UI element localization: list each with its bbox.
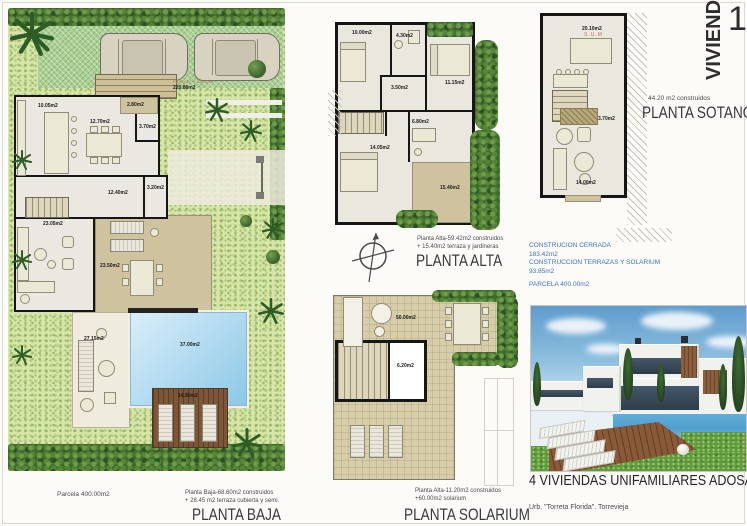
washbasin xyxy=(414,148,422,156)
sofa xyxy=(553,148,567,190)
sphere-lamp xyxy=(677,444,689,455)
solarium-caption-1: Planta Alta-11.20m2 construidos xyxy=(415,488,501,495)
chair xyxy=(156,278,163,286)
villa-window-band xyxy=(625,358,681,374)
car-windshield-line xyxy=(118,39,119,76)
hatch-area xyxy=(616,228,672,242)
chair xyxy=(122,278,129,286)
cypress-tree xyxy=(732,336,745,412)
solarium-caption-2: +60.00m2 solarium xyxy=(415,496,466,503)
bathtub xyxy=(412,128,436,142)
cloud xyxy=(546,318,606,334)
sun-lounger xyxy=(369,425,384,458)
cloud xyxy=(641,312,713,330)
coffee-table xyxy=(34,248,47,261)
bed-pillow xyxy=(340,152,378,160)
room-area-label: 14.80m2 xyxy=(178,394,198,399)
car-rear-window-line xyxy=(165,39,166,76)
chair xyxy=(104,392,116,404)
car-roof xyxy=(122,40,164,76)
door-threshold xyxy=(565,195,601,202)
sun-lounger xyxy=(388,425,403,458)
porch-lounger xyxy=(110,221,144,234)
room-area-label: 2.80m2 xyxy=(127,103,144,108)
room-area-label: 50.00m2 xyxy=(396,316,416,321)
partition-wall xyxy=(408,112,410,162)
round-table xyxy=(371,303,392,324)
chair xyxy=(445,307,452,315)
chair xyxy=(90,157,98,164)
garden-label: PARQUE Y JARDIN xyxy=(173,80,213,84)
round-table xyxy=(574,152,594,172)
info-block: CONSTRUCION CERRADA 183.42m2 CONSTRUCCIO… xyxy=(529,242,660,290)
bush xyxy=(266,250,280,264)
chair xyxy=(101,157,109,164)
stair-hatch xyxy=(560,108,598,125)
room-area-label: 15.40m2 xyxy=(440,186,460,191)
partition-wall xyxy=(390,24,392,76)
info-line: 183.42m2 xyxy=(529,251,660,260)
vivienda-number: 1 xyxy=(728,0,747,39)
solarium-greenery xyxy=(497,296,518,368)
armchair xyxy=(577,127,591,142)
stool xyxy=(565,69,571,75)
room-area-label: 6.80m2 xyxy=(412,120,429,125)
alta-greenery xyxy=(396,210,438,228)
sotano-title: PLANTA SOTANO xyxy=(642,104,747,121)
sotano-caption: 44.20 m2 construidos xyxy=(648,95,710,102)
stool xyxy=(583,69,589,75)
palm-icon xyxy=(12,250,32,270)
info-line: CONSTRUCCION TERRAZAS Y SOLARIUM xyxy=(529,259,660,268)
chair xyxy=(122,264,129,272)
room-area-label: 4.30m2 xyxy=(396,34,413,39)
parcela-caption: Parcela 400.00m2 xyxy=(57,491,110,498)
info-line: CONSTRUCION CERRADA xyxy=(529,242,660,251)
porch-lounger xyxy=(110,239,144,252)
room-area-label: 14.00m2 xyxy=(576,181,596,186)
info-line: PARCELA 400.00m2 xyxy=(529,281,660,290)
kitchen-island xyxy=(44,112,69,174)
sun-lounger xyxy=(350,425,365,458)
room-area-label: 12.40m2 xyxy=(108,191,128,196)
side-table xyxy=(47,260,56,269)
palm-icon xyxy=(12,345,32,365)
room-area-label: 3.70m2 xyxy=(139,125,156,130)
hatch-area xyxy=(328,90,342,136)
round-chair xyxy=(80,398,94,412)
round-stool xyxy=(374,326,385,337)
chair xyxy=(445,320,452,328)
baja-caption-2: + 28.45 m2 terraza cubierta y semi. xyxy=(185,498,279,505)
garden-area-label: 220.86m2 xyxy=(173,86,196,91)
bar-counter xyxy=(553,74,588,88)
partition-wall xyxy=(380,75,426,77)
gate-leaf xyxy=(261,163,263,193)
plant-pot xyxy=(20,294,30,304)
stool xyxy=(71,128,77,134)
garden-path xyxy=(168,150,285,205)
chair xyxy=(445,333,452,341)
room-area-label: 10.00m2 xyxy=(352,31,372,36)
villa-wood-panel xyxy=(681,346,697,382)
villa-left-wing xyxy=(583,366,621,411)
room-area-label: 10.05m2 xyxy=(38,104,58,109)
stool xyxy=(71,140,77,146)
solarium-title: PLANTA SOLARIUM xyxy=(404,506,530,523)
chimney xyxy=(681,336,688,343)
partition-wall xyxy=(385,112,387,136)
room-area-label: 23.05m2 xyxy=(43,222,63,227)
chair xyxy=(156,264,163,272)
staircase xyxy=(338,343,390,399)
palm-icon xyxy=(12,150,32,170)
alta-caption-2: + 15.40m2 terraza y jardineras xyxy=(417,244,499,251)
armchair xyxy=(62,236,74,248)
stool xyxy=(556,69,562,75)
solarium-greenery xyxy=(452,352,500,366)
room-area-label: 3.70m2 xyxy=(598,117,615,122)
partition-wall xyxy=(425,24,427,110)
lower-floor-outline xyxy=(484,378,514,486)
background-window-band xyxy=(537,390,583,397)
solarium-stair-core xyxy=(335,340,427,402)
villa-window-band xyxy=(587,378,613,388)
bush xyxy=(240,215,252,227)
palm-icon xyxy=(240,120,262,142)
partition-wall xyxy=(143,177,145,217)
alta-planter xyxy=(427,22,473,37)
stool xyxy=(71,116,77,122)
outdoor-sofa xyxy=(343,297,363,347)
room-name-label: S.U.M xyxy=(584,33,603,38)
baja-caption-1: Planta Baja-68.60m2 construidos xyxy=(185,490,273,497)
palm-icon xyxy=(232,428,262,458)
round-chair xyxy=(556,128,573,145)
room-area-label: 3.20m2 xyxy=(147,186,164,191)
room-area-label: 27.15m2 xyxy=(84,337,104,342)
chair xyxy=(482,320,489,328)
games-table xyxy=(570,38,612,64)
outdoor-dining-table xyxy=(130,260,154,296)
sofa xyxy=(17,281,55,293)
cypress-tree xyxy=(657,364,665,402)
sun-lounger xyxy=(202,404,217,442)
gate-pillar xyxy=(256,156,264,163)
room-area-label: 23.50m2 xyxy=(100,264,120,269)
bush xyxy=(248,60,266,78)
palm-icon xyxy=(262,218,284,240)
chair xyxy=(101,126,109,133)
cypress-tree xyxy=(719,364,727,410)
compass-icon xyxy=(350,230,396,286)
washbasin xyxy=(394,40,403,49)
render-photo xyxy=(530,305,747,472)
alta-greenery xyxy=(475,40,498,130)
partition-wall xyxy=(380,76,382,110)
room-area-label: 12.70m2 xyxy=(90,120,110,125)
bed-pillow xyxy=(340,42,366,50)
project-location: Urb. "Torreta Florida". Torrevieja xyxy=(529,504,628,511)
partition-wall xyxy=(135,114,137,141)
chimney xyxy=(635,338,641,344)
dining-table xyxy=(453,303,481,345)
lower-floor-outline-line xyxy=(497,378,498,486)
side-table xyxy=(150,228,159,237)
partition-wall xyxy=(135,140,159,142)
cypress-tree xyxy=(533,362,541,406)
palm-icon xyxy=(10,12,54,56)
project-title: 4 VIVIENDAS UNIFAMILIARES ADOSADA xyxy=(529,472,747,489)
alta-caption-1: Planta Alta-59.42m2 construidos xyxy=(417,236,503,243)
car-top-view xyxy=(194,33,280,81)
pool-wall xyxy=(128,308,198,313)
room-area-label: 14.05m2 xyxy=(370,146,390,151)
alta-title: PLANTA ALTA xyxy=(416,252,502,269)
lower-floor-outline-line xyxy=(484,430,514,431)
palm-icon xyxy=(205,98,229,122)
chair xyxy=(112,157,120,164)
chair xyxy=(90,126,98,133)
sun-lounger xyxy=(158,404,173,442)
room-area-label: 3.50m2 xyxy=(391,86,408,91)
sun-lounger xyxy=(180,404,195,442)
room-area-label: 11.15m2 xyxy=(445,81,464,86)
vivienda-label: VIVIENDA xyxy=(703,4,729,80)
baja-title: PLANTA BAJA xyxy=(192,506,281,523)
chair xyxy=(482,307,489,315)
car-windshield-line xyxy=(212,39,213,76)
info-line: 93.85m2 xyxy=(529,268,660,277)
staircase xyxy=(338,112,384,134)
room-area-label: 37.00m2 xyxy=(180,343,200,348)
staircase xyxy=(25,197,69,218)
room-area-label: 6.20m2 xyxy=(397,364,414,369)
stool xyxy=(71,152,77,158)
gate-pillar xyxy=(256,192,264,199)
armchair xyxy=(62,258,74,270)
stool xyxy=(574,69,580,75)
chair xyxy=(482,333,489,341)
chair xyxy=(112,126,120,133)
dining-table xyxy=(86,133,122,157)
architectural-sheet: PARQUE Y JARDIN 220.86m2 xyxy=(0,0,747,526)
alta-greenery xyxy=(470,130,500,230)
palm-icon xyxy=(258,298,284,324)
round-chair xyxy=(98,360,115,377)
sun-lounger xyxy=(78,340,94,392)
bed-pillow xyxy=(430,44,438,76)
